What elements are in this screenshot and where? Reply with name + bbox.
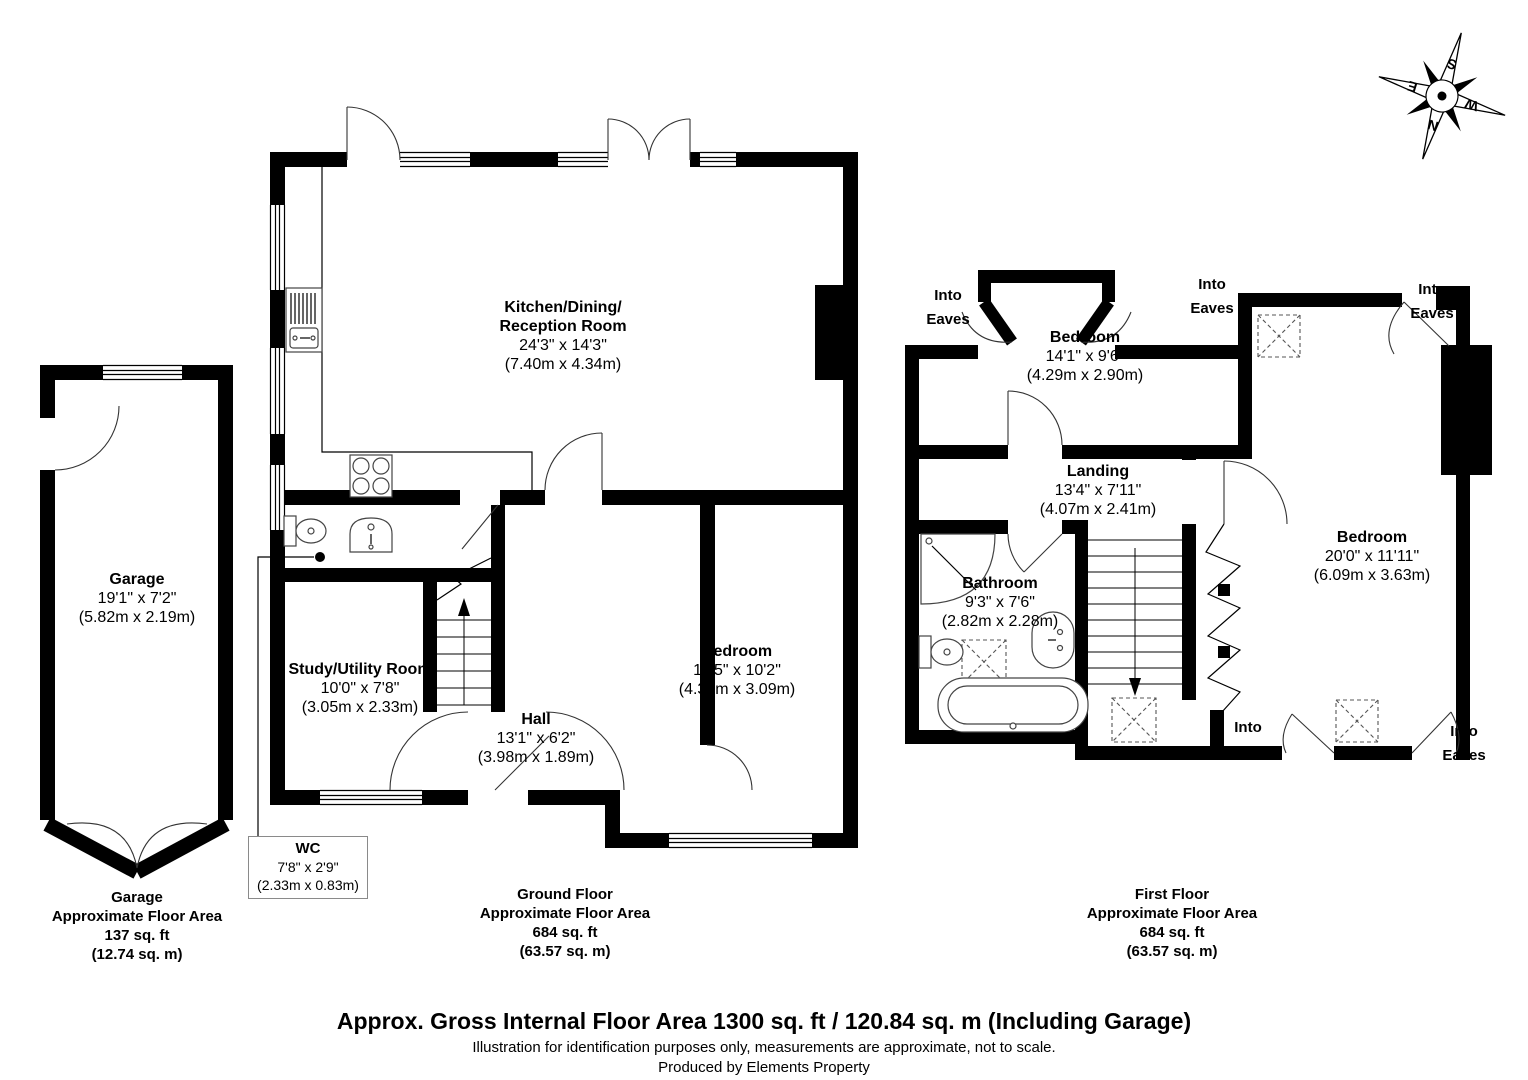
window-symbol	[270, 348, 285, 434]
garage-side-door-arc	[55, 406, 119, 470]
wc-leader-dot	[315, 552, 325, 562]
compass-north-label: N	[1426, 117, 1440, 135]
rooflight-icon	[1112, 698, 1156, 742]
room-label-landing: Landing 13'4" x 7'11" (4.07m x 2.41m)	[1040, 462, 1156, 519]
into-eaves-label-top-right: Into Eaves	[1410, 278, 1453, 326]
compass-rose: N E S W	[1360, 14, 1525, 179]
bedroom-door-arc	[707, 745, 752, 790]
disclaimer-text: Illustration for identification purposes…	[472, 1039, 1055, 1056]
room-label-kitchen: Kitchen/Dining/ Reception Room 24'3" x 1…	[499, 298, 626, 374]
into-eaves-label-top-middle: Into Eaves	[1190, 273, 1233, 321]
kitchen-hall-door	[545, 433, 602, 490]
landing-bedroom-door	[1224, 461, 1287, 524]
rooflight-icon	[1336, 700, 1378, 742]
window-symbol	[103, 365, 182, 380]
stairs-down	[1088, 540, 1182, 696]
window-symbol	[320, 790, 422, 805]
ground-floor-area-summary: Ground Floor Approximate Floor Area 684 …	[480, 885, 650, 961]
into-eaves-label-top-left: Into Eaves	[926, 284, 969, 332]
compass-south-label: S	[1445, 55, 1459, 73]
room-label-bedroom-first: Bedroom 20'0" x 11'11" (6.09m x 3.63m)	[1314, 528, 1430, 585]
hob-icon	[350, 455, 392, 497]
garage-area-summary: Garage Approximate Floor Area 137 sq. ft…	[52, 888, 222, 964]
window-symbol	[270, 205, 285, 290]
first-floor-plan	[905, 270, 1492, 760]
bath-icon	[938, 678, 1088, 732]
room-label-bedroom-ground: Bedroom 14'5" x 10'2" (4.39m x 3.09m)	[679, 642, 795, 699]
kitchen-exterior-door	[347, 107, 400, 160]
room-label-study: Study/Utility Room 10'0" x 7'8" (3.05m x…	[288, 660, 431, 717]
producer-credit: Produced by Elements Property	[658, 1059, 870, 1076]
toilet-icon	[284, 516, 326, 546]
total-area-title: Approx. Gross Internal Floor Area 1300 s…	[337, 1008, 1191, 1035]
window-symbol	[669, 833, 812, 848]
front-bedroom-door	[1008, 391, 1062, 445]
room-label-bedroom-front: Bedroom 14'1" x 9'6" (4.29m x 2.90m)	[1027, 328, 1143, 385]
toilet-icon	[919, 636, 963, 668]
window-symbol	[700, 152, 736, 167]
rooflight-icon	[1258, 315, 1300, 357]
floorplan-drawing: N E S W	[0, 0, 1528, 1080]
eaves-door-arc-topright	[1389, 302, 1404, 354]
floorplan-page: N E S W Kitchen/Dining/ Reception Room 2…	[0, 0, 1528, 1080]
room-label-garage: Garage 19'1" x 7'2" (5.82m x 2.19m)	[79, 570, 195, 627]
boiler-icon	[286, 288, 322, 352]
eaves-zigzag-wall	[1206, 524, 1240, 712]
room-label-bathroom: Bathroom 9'3" x 7'6" (2.82m x 2.28m)	[942, 574, 1058, 631]
window-symbol	[270, 465, 285, 530]
room-label-hall: Hall 13'1" x 6'2" (3.98m x 1.89m)	[478, 710, 594, 767]
window-symbol	[558, 152, 608, 167]
into-eaves-label-bottom-middle: Into Eaves	[1226, 716, 1269, 764]
first-floor-area-summary: First Floor Approximate Floor Area 684 s…	[1087, 885, 1257, 961]
wc-callout-box: WC 7'8" x 2'9" (2.33m x 0.83m)	[248, 836, 368, 899]
bathroom-door	[1008, 534, 1062, 572]
eaves-door-bottom-left	[1283, 714, 1334, 753]
basin-icon	[350, 518, 392, 552]
window-symbol	[400, 152, 470, 167]
into-eaves-label-bottom-right: Into Eaves	[1442, 720, 1485, 768]
french-doors	[608, 119, 690, 160]
